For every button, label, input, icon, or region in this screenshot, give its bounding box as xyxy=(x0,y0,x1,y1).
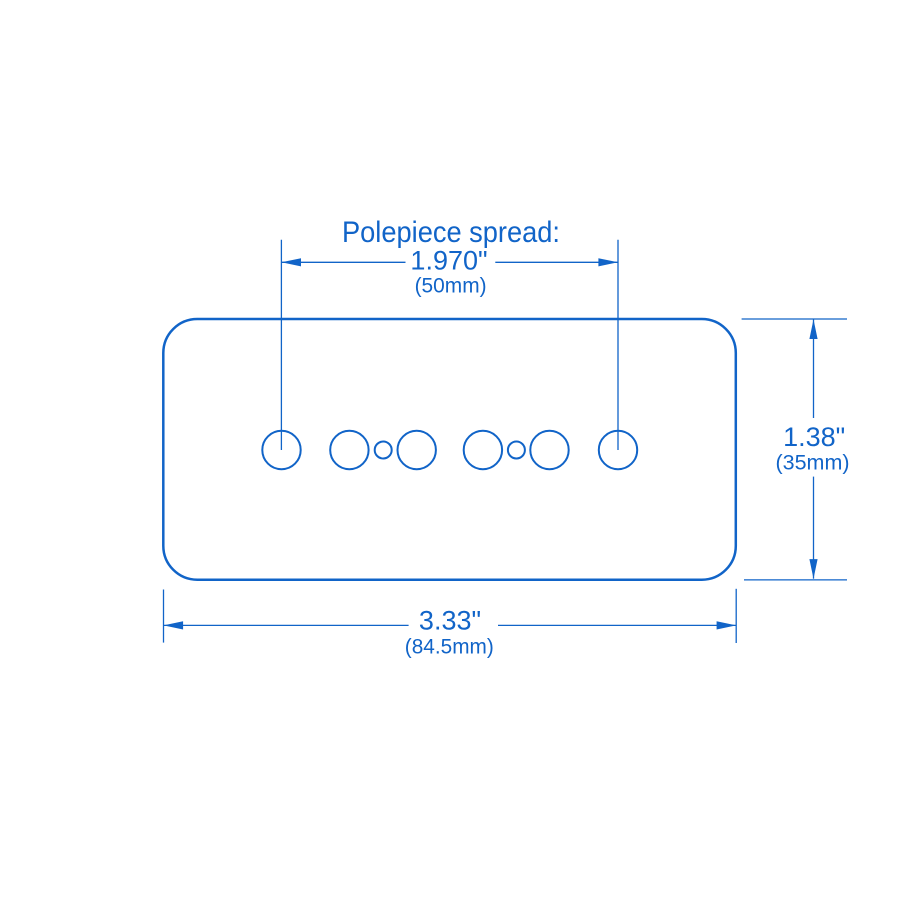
svg-text:3.33": 3.33" xyxy=(419,605,481,635)
svg-text:1.38": 1.38" xyxy=(783,422,845,452)
svg-text:(84.5mm): (84.5mm) xyxy=(405,636,494,659)
svg-text:1.970": 1.970" xyxy=(410,246,487,276)
svg-text:(50mm): (50mm) xyxy=(415,275,487,298)
svg-text:(35mm): (35mm) xyxy=(776,452,850,475)
svg-text:Polepiece spread:: Polepiece spread: xyxy=(342,216,560,249)
